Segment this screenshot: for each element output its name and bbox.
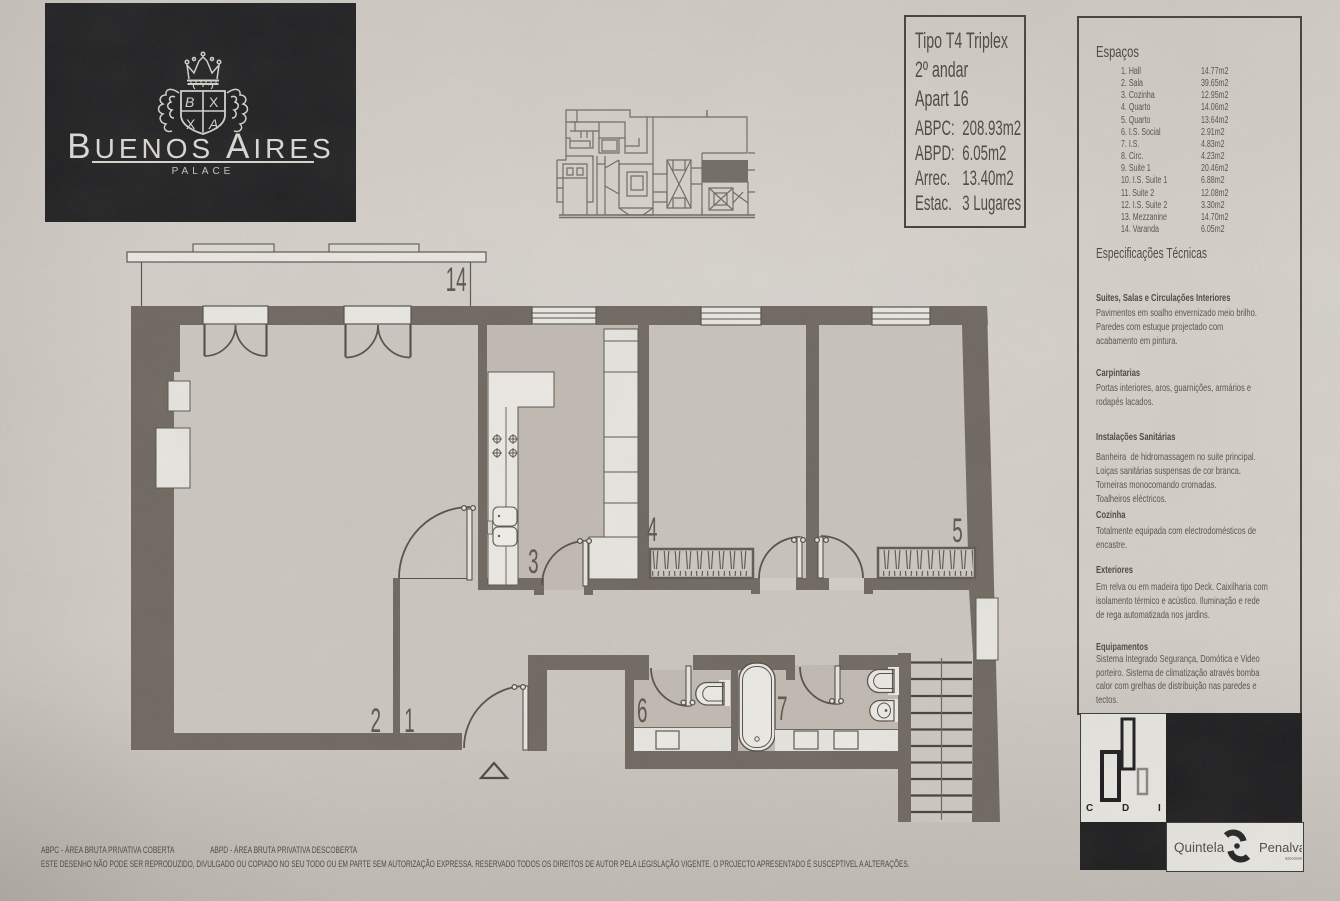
svg-text:C: C xyxy=(1086,803,1093,814)
svg-text:I: I xyxy=(1158,803,1161,814)
svg-text:PALACE: PALACE xyxy=(172,166,235,177)
svg-text:associados: associados xyxy=(1285,856,1302,861)
svg-text:X: X xyxy=(186,116,196,132)
svg-text:X: X xyxy=(209,94,219,110)
svg-text:Quintela: Quintela xyxy=(1174,840,1225,855)
svg-text:Penalva: Penalva xyxy=(1259,840,1302,855)
svg-text:1: 1 xyxy=(404,701,414,739)
svg-text:7: 7 xyxy=(777,689,787,727)
svg-text:14: 14 xyxy=(446,260,467,298)
svg-text:6: 6 xyxy=(637,691,647,729)
svg-text:3: 3 xyxy=(528,542,538,580)
svg-text:BUENOS AIRES: BUENOS AIRES xyxy=(67,127,334,166)
svg-text:2: 2 xyxy=(371,701,381,739)
svg-text:B: B xyxy=(185,94,194,110)
svg-text:5: 5 xyxy=(952,511,962,549)
svg-text:4: 4 xyxy=(647,510,657,548)
svg-text:D: D xyxy=(1122,803,1129,814)
